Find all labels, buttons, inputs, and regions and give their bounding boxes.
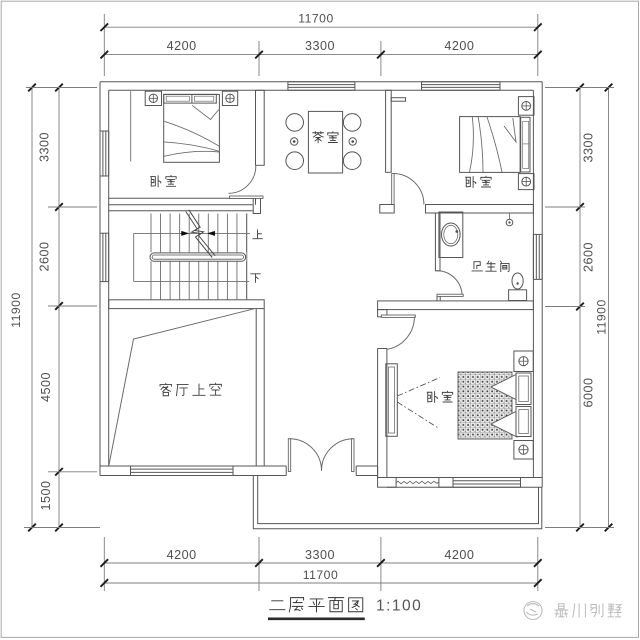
svg-text:11900: 11900 [595,299,609,335]
svg-text:6000: 6000 [582,377,596,407]
svg-text:3300: 3300 [305,39,335,53]
svg-text:1500: 1500 [39,480,53,510]
svg-text:4200: 4200 [444,39,474,53]
svg-text:4500: 4500 [39,372,53,402]
svg-text:3300: 3300 [582,132,596,162]
svg-text:11900: 11900 [9,292,23,328]
svg-text:1:100: 1:100 [376,598,422,615]
svg-text:2600: 2600 [38,241,52,271]
svg-text:3300: 3300 [38,132,52,162]
svg-text:2600: 2600 [582,242,596,272]
svg-text:4200: 4200 [167,548,197,562]
svg-text:3300: 3300 [305,548,335,562]
svg-text:11700: 11700 [298,12,334,26]
svg-text:11700: 11700 [303,568,339,582]
svg-text:4200: 4200 [444,548,474,562]
svg-text:4200: 4200 [167,39,197,53]
